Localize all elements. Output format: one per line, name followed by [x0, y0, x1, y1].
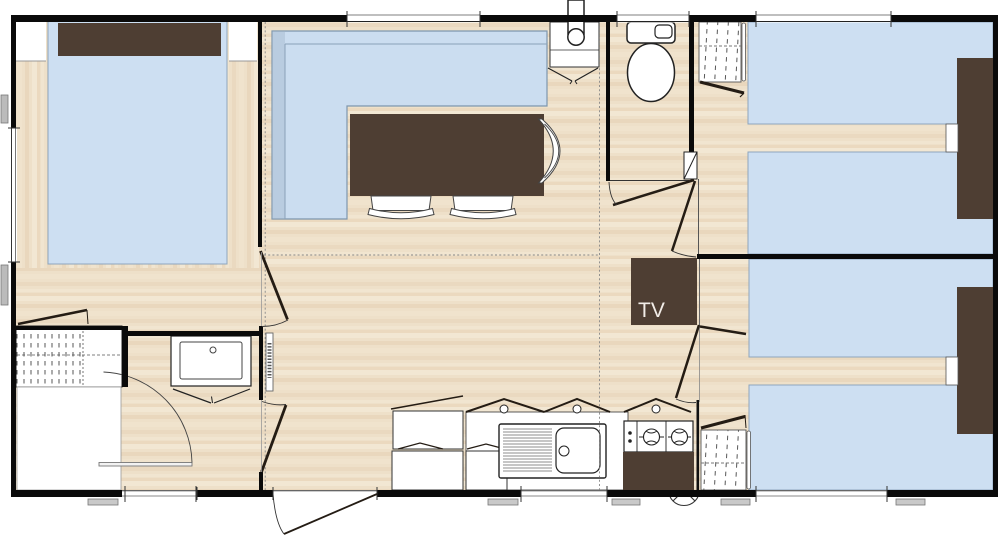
svg-text:TV: TV: [638, 299, 665, 322]
